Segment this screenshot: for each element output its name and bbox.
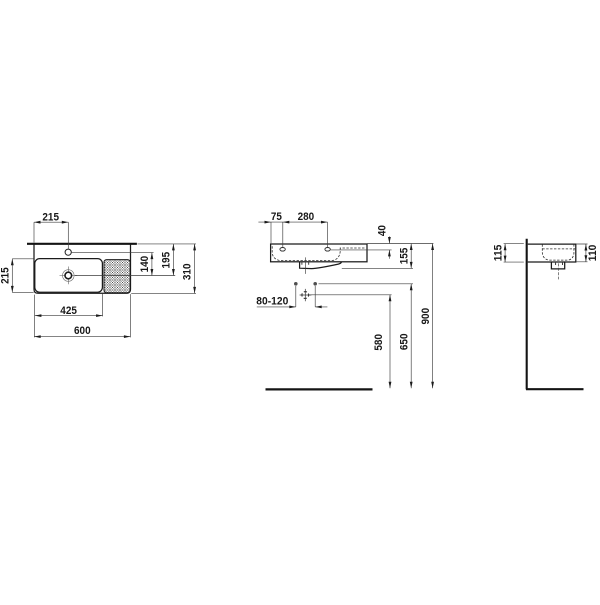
svg-text:140: 140: [139, 256, 151, 273]
svg-text:80-120: 80-120: [256, 295, 288, 307]
svg-text:650: 650: [398, 334, 410, 351]
svg-text:280: 280: [298, 211, 315, 223]
svg-text:195: 195: [160, 252, 172, 269]
svg-text:75: 75: [271, 211, 282, 223]
svg-text:155: 155: [398, 248, 410, 265]
svg-text:900: 900: [420, 308, 432, 325]
svg-text:40: 40: [377, 225, 389, 236]
svg-text:600: 600: [74, 325, 91, 337]
svg-text:215: 215: [0, 267, 12, 284]
svg-text:115: 115: [492, 245, 504, 262]
svg-text:425: 425: [60, 305, 77, 317]
svg-text:580: 580: [373, 334, 385, 351]
svg-text:215: 215: [42, 211, 59, 223]
svg-text:110: 110: [587, 245, 599, 262]
svg-text:310: 310: [182, 264, 194, 281]
